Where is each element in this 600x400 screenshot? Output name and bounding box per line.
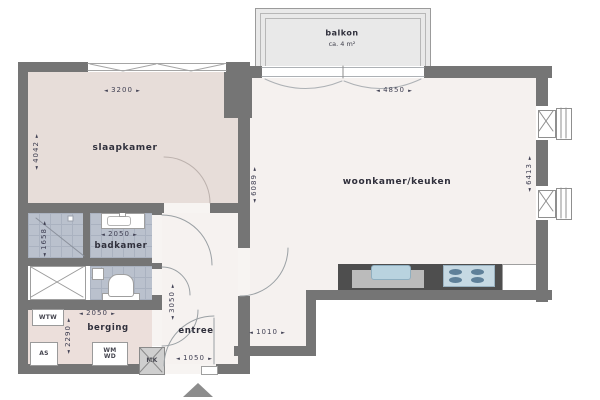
wall-slaapkamer-bottom-b <box>210 203 240 213</box>
mk-label: MK <box>146 358 157 364</box>
wall-top-right-b <box>424 66 552 78</box>
woonkamer-door-opening <box>238 248 250 296</box>
shower-floor <box>28 213 83 260</box>
wall-right <box>536 66 548 302</box>
balcony-door-opening <box>262 66 424 78</box>
dim-woonkamer-width: ◄ 4850 ► <box>376 86 412 94</box>
wm-wd-unit: WM WD <box>92 342 128 366</box>
wall-mid-vertical-top <box>238 62 250 248</box>
berging-label: berging <box>87 323 128 333</box>
window-frame-panel <box>556 188 572 220</box>
wall-passage-stub <box>306 290 316 346</box>
woonkamer-label: woonkamer/keuken <box>343 177 451 187</box>
dim-passage-width: ◄ 1010 ► <box>249 328 285 336</box>
wtw-label: WTW <box>39 315 57 321</box>
balcony-label: balkon <box>325 29 358 38</box>
wall-bath-corridor-a <box>152 203 162 215</box>
wall-bath-row-divider <box>28 258 162 266</box>
dim-facade-right: ◄ 6413 ► <box>525 156 533 192</box>
window-frame-panel <box>556 108 572 140</box>
washbasin-bowl <box>107 216 131 226</box>
dim-shower-depth: ◄ 1658 ► <box>40 221 48 257</box>
wall-passage-bottom <box>234 346 316 356</box>
badkamer-label: badkamer <box>95 241 148 251</box>
passage-floor <box>250 290 306 346</box>
wall-shower-divider <box>83 213 90 260</box>
as-unit: AS <box>30 342 58 366</box>
entree-label: entree <box>178 326 213 336</box>
dim-berging-depth: ◄ 2290 ► <box>64 318 72 354</box>
burner-icon <box>449 269 462 275</box>
kitchen-sink-bowl <box>371 265 411 280</box>
burner-icon <box>471 269 484 275</box>
wall-woonkamer-bottom <box>306 290 552 300</box>
dim-badkamer-width: ◄ 2050 ► <box>101 230 137 238</box>
toilet-cistern <box>92 268 104 280</box>
window-vent-box <box>538 110 556 138</box>
wall-left <box>18 62 28 374</box>
badkamer-door-opening <box>152 215 162 263</box>
slaapkamer-label: slaapkamer <box>92 143 157 153</box>
wall-bottom-b <box>216 364 250 374</box>
shaft-box <box>30 266 86 300</box>
wd-label: WD <box>104 354 116 360</box>
kitchen-cabinet <box>502 264 537 291</box>
dim-slaapkamer-depth: ◄ 4042 ► <box>32 134 40 170</box>
wtw-unit: WTW <box>32 309 64 326</box>
slaapkamer-door-opening <box>164 203 210 213</box>
berging-door-opening <box>152 310 162 346</box>
kitchen-cooktop <box>443 265 495 287</box>
slaapkamer-window-opening <box>88 62 226 72</box>
burner-icon <box>471 277 484 283</box>
balcony-area-label: ca. 4 m² <box>329 40 356 48</box>
dim-berging-width: ◄ 2050 ► <box>79 309 115 317</box>
dim-slaapkamer-width: ◄ 3200 ► <box>104 86 140 94</box>
dim-entree-depth: ◄ 3050 ► <box>168 284 176 320</box>
burner-icon <box>449 277 462 283</box>
wall-slaapkamer-bottom-a <box>28 203 164 213</box>
wc-door-opening <box>152 269 162 295</box>
wall-top-a <box>18 62 88 72</box>
window-unit-top <box>536 106 572 140</box>
window-unit-bottom <box>536 186 572 220</box>
floor-plan: balkon ca. 4 m² <box>0 0 600 400</box>
dim-woonkamer-depth: ◄ 6089 ► <box>250 167 258 203</box>
dim-entrance-width: ◄ 1050 ► <box>176 354 212 362</box>
entrance-threshold <box>201 366 218 375</box>
as-label: AS <box>39 351 49 357</box>
toilet-bowl <box>108 274 134 297</box>
mk-meterkast: MK <box>139 347 165 375</box>
window-vent-box <box>538 190 556 218</box>
